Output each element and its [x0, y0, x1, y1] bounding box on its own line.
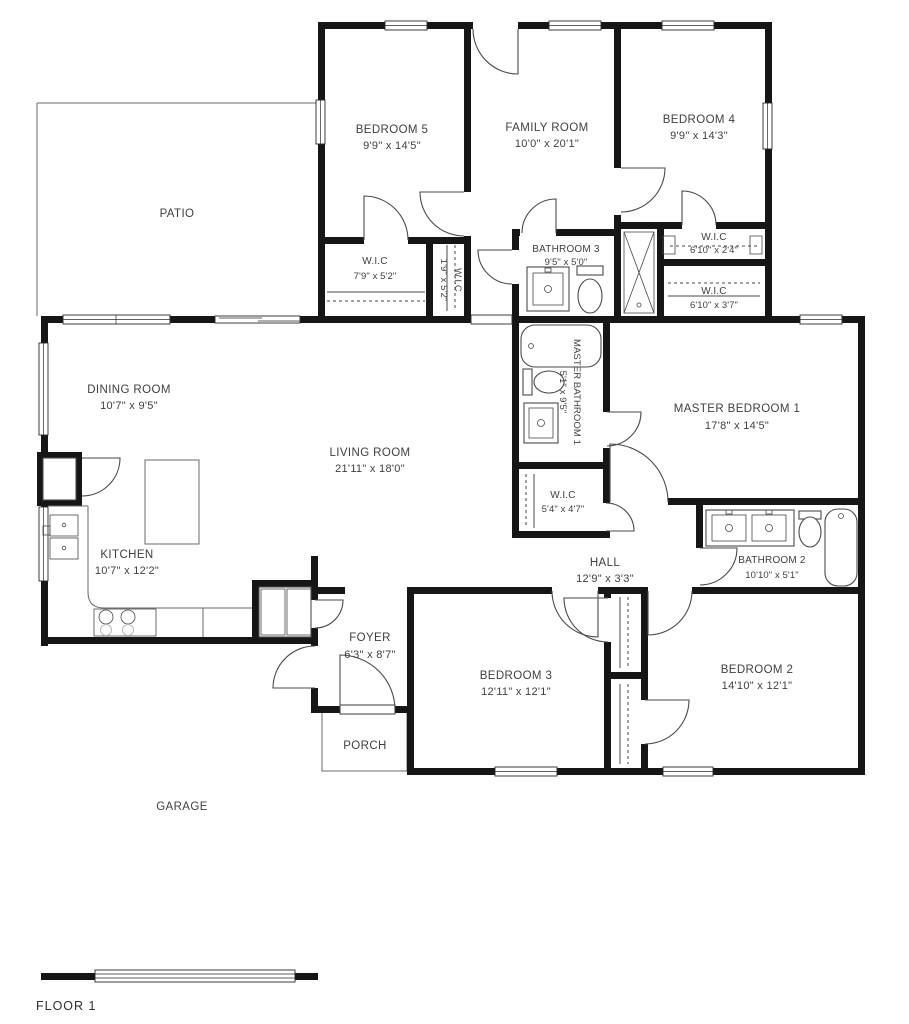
bathroom3-label: BATHROOM 3 [532, 244, 600, 255]
room-labels: BEDROOM 5 9'9" x 14'5" FAMILY ROOM 10'0"… [36, 114, 806, 1013]
bedroom4-label: BEDROOM 4 [663, 114, 736, 126]
master-bedroom-dims: 17'8" x 14'5" [705, 420, 769, 432]
door-garage-entry [273, 646, 315, 688]
window [316, 100, 325, 144]
bathroom2-vanity [706, 510, 794, 546]
master-sink [524, 403, 558, 443]
bedroom2-dims: 14'10" x 12'1" [722, 680, 793, 692]
hall-dims: 12'9" x 3'3" [576, 573, 634, 585]
door-bedroom2 [648, 591, 692, 635]
window [39, 343, 48, 435]
wic-37-label: W.I.C [701, 286, 726, 297]
dining-room-dims: 10'7" x 9'5" [100, 400, 158, 412]
garage-door [95, 970, 295, 982]
door-master-bedroom [610, 444, 668, 502]
door-bedroom5-wic [364, 196, 408, 240]
family-room-label: FAMILY ROOM [505, 122, 588, 134]
wic-24-label: W.I.C [701, 232, 726, 243]
hall-label: HALL [590, 557, 621, 569]
door-bathroom3 [522, 199, 556, 233]
floor-title: FLOOR 1 [36, 999, 97, 1013]
family-room-dims: 10'0" x 20'1" [515, 138, 579, 150]
kitchen-stove [94, 609, 156, 636]
window [549, 21, 601, 30]
living-room-label: LIVING ROOM [329, 447, 410, 459]
foyer-closet [259, 587, 311, 637]
floor-plan-page: BEDROOM 5 9'9" x 14'5" FAMILY ROOM 10'0"… [0, 0, 909, 1024]
wall-segment [37, 22, 865, 980]
bedroom2-label: BEDROOM 2 [721, 664, 794, 676]
foyer-dims: 6'3" x 8'7" [344, 649, 395, 661]
door-foyer-closet [315, 600, 343, 628]
window [495, 767, 557, 776]
window [663, 767, 713, 776]
living-room-dims: 21'11" x 18'0" [335, 463, 405, 475]
bathroom3-toilet [577, 266, 603, 313]
door-pantry [82, 458, 120, 496]
door-bathroom2 [700, 548, 737, 585]
wic-37-dims: 6'10" x 3'7" [690, 300, 738, 311]
window [63, 315, 170, 324]
door-bedroom2-closet [645, 700, 689, 744]
wic-master-label: W.I.C [550, 490, 575, 501]
wic-narrow-label: W.I.C [452, 268, 463, 292]
bathroom2-bathtub [825, 509, 857, 586]
master-bedroom-label: MASTER BEDROOM 1 [674, 403, 801, 415]
door-master-bathroom [607, 412, 641, 446]
bedroom3-label: BEDROOM 3 [480, 670, 553, 682]
floor-plan-drawing: BEDROOM 5 9'9" x 14'5" FAMILY ROOM 10'0"… [0, 0, 909, 1024]
wic-24-dims: 6'10" x 2'4" [690, 245, 738, 256]
patio-label: PATIO [160, 208, 195, 220]
door-front-entry [340, 655, 395, 710]
door-wic-24 [682, 191, 716, 225]
pantry-inset [43, 458, 76, 500]
bathroom3-sink [527, 267, 569, 311]
fixtures [43, 232, 857, 637]
door-family-room [473, 29, 518, 74]
door-wic-master [606, 503, 634, 531]
bathroom2-label: BATHROOM 2 [738, 555, 806, 566]
kitchen-island [145, 460, 199, 544]
wic-narrow-dims: 1'9" x 5'2" [438, 259, 449, 302]
sliding-door [215, 316, 300, 323]
window [662, 21, 714, 30]
bathroom2-toilet [799, 511, 821, 547]
kitchen-label: KITCHEN [100, 549, 153, 561]
master-bath-label: MASTER BATHROOM 1 [571, 339, 582, 445]
opening-threshold [471, 315, 512, 324]
bedroom4-dims: 9'9" x 14'3" [670, 130, 728, 142]
master-bathtub [521, 325, 601, 367]
garage-label: GARAGE [156, 801, 208, 813]
walls [37, 22, 865, 980]
window [39, 507, 48, 581]
door-hallway-opening [478, 250, 512, 284]
front-door-threshold [340, 705, 395, 714]
dining-room-label: DINING ROOM [87, 384, 171, 396]
bedroom3-dims: 12'11" x 12'1" [481, 686, 551, 698]
master-bath-dims: 5'1" x 9'5" [557, 371, 568, 414]
foyer-label: FOYER [349, 632, 391, 644]
shower [624, 232, 654, 313]
window [385, 21, 427, 30]
kitchen-dims: 10'7" x 12'2" [95, 565, 159, 577]
wic-bed5-dims: 7'9" x 5'2" [354, 271, 397, 282]
bathroom3-dims: 9'5" x 5'0" [545, 257, 588, 268]
bedroom5-dims: 9'9" x 14'5" [363, 140, 421, 152]
wic-narrow-label-group: W.I.C 1'9" x 5'2" [438, 259, 463, 302]
wic-master-dims: 5'4" x 4'7" [542, 504, 585, 515]
window [763, 103, 772, 149]
porch-label: PORCH [343, 740, 387, 752]
door-bedroom4 [621, 168, 665, 212]
bedroom5-label: BEDROOM 5 [356, 124, 429, 136]
door-bedroom5 [420, 192, 464, 236]
bathroom2-dims: 10'10" x 5'1" [745, 570, 798, 581]
window [800, 315, 842, 324]
wic-bed5-label: W.I.C [362, 256, 387, 267]
